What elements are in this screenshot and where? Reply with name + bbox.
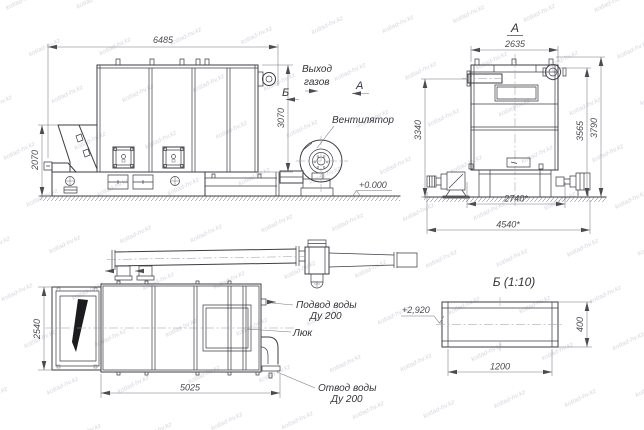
fan-label: Вентилятор bbox=[332, 115, 394, 126]
dim-text-2070: 2070 bbox=[30, 150, 40, 171]
drawing-canvas: kotlad-hv.kz kotlad-hv.kz bbox=[0, 0, 644, 430]
front-view-title: А bbox=[510, 21, 519, 35]
dim-text-2740: 2740* bbox=[503, 194, 528, 204]
dim-text-3790: 3790 bbox=[589, 118, 599, 138]
drawing-sheet: kotlad-hv.kz kotlad-hv.kz bbox=[0, 0, 644, 430]
gas-outlet-label-line2: газов bbox=[304, 77, 329, 88]
dim-text-3565: 3565 bbox=[575, 120, 585, 141]
level-2920-text: +2,920 bbox=[402, 305, 430, 315]
water-inlet-label-line2: Ду 200 bbox=[309, 311, 342, 322]
view-a-marker: А bbox=[355, 80, 363, 92]
water-inlet-label-line1: Подвод воды bbox=[296, 300, 357, 311]
dim-text-400: 400 bbox=[575, 317, 585, 332]
gas-outlet-label-line1: Выход bbox=[302, 64, 332, 75]
dim-text-6485: 6485 bbox=[153, 35, 174, 45]
water-outlet-label-line1: Отвод воды bbox=[318, 383, 377, 394]
dim-text-1200: 1200 bbox=[490, 362, 510, 372]
water-outlet-label-line2: Ду 200 bbox=[330, 394, 363, 405]
dim-text-3340: 3340 bbox=[413, 120, 423, 140]
dim-text-3070: 3070 bbox=[276, 108, 286, 128]
dim-text-4540: 4540* bbox=[496, 220, 520, 230]
ground-line bbox=[40, 196, 400, 201]
hatch-label: Люк bbox=[292, 328, 313, 339]
section-b-marker: Б bbox=[282, 87, 289, 99]
level-zero-text: +0.000 bbox=[359, 180, 387, 190]
detail-title: Б (1:10) bbox=[493, 275, 536, 289]
dim-text-5025: 5025 bbox=[180, 383, 201, 393]
dim-text-2635: 2635 bbox=[504, 39, 526, 49]
dim-text-2540: 2540 bbox=[32, 319, 42, 340]
